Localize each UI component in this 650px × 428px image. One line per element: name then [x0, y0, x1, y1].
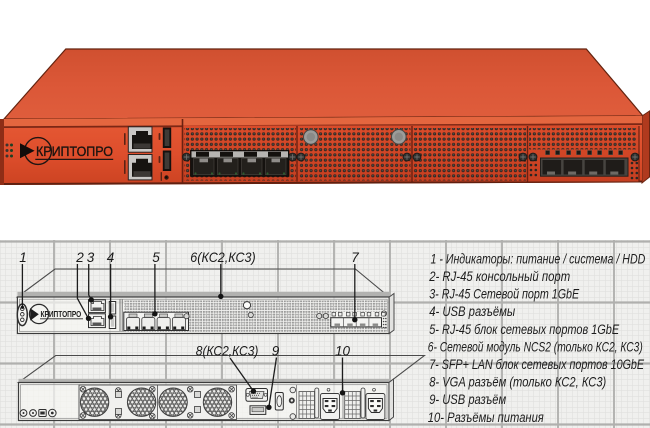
svg-text:7: 7 [351, 250, 359, 265]
svg-text:1 - Индикаторы: питание / сист: 1 - Индикаторы: питание / система / HDD [431, 251, 646, 267]
svg-text:2- RJ-45 консольный порт: 2- RJ-45 консольный порт [428, 269, 570, 284]
svg-text:9: 9 [272, 344, 280, 359]
svg-text:3: 3 [87, 250, 95, 265]
svg-text:6- Сетевой модуль NCS2 (только: 6- Сетевой модуль NCS2 (только КС2, КС3) [428, 339, 643, 355]
svg-text:КРИПТОПРО: КРИПТОПРО [36, 144, 113, 159]
svg-text:4: 4 [107, 250, 115, 265]
svg-text:4- USB разъёмы: 4- USB разъёмы [429, 304, 515, 319]
svg-text:10- Разъёмы питания: 10- Разъёмы питания [428, 410, 544, 425]
svg-text:5: 5 [152, 250, 160, 265]
svg-text:5- RJ-45 блок сетевых портов 1: 5- RJ-45 блок сетевых портов 1GbE [429, 322, 620, 337]
svg-text:КРИПТОПРО: КРИПТОПРО [41, 310, 82, 320]
svg-text:1: 1 [19, 250, 27, 265]
svg-text:10: 10 [335, 344, 351, 359]
svg-text:9- USB разъём: 9- USB разъём [429, 392, 506, 407]
svg-text:8- VGA разъём (только КС2, КС3: 8- VGA разъём (только КС2, КС3) [429, 375, 606, 390]
svg-text:3- RJ-45 Сетевой порт 1GbE: 3- RJ-45 Сетевой порт 1GbE [429, 287, 580, 302]
svg-text:8(КС2,КС3): 8(КС2,КС3) [196, 343, 259, 359]
svg-text:6(КС2,КС3): 6(КС2,КС3) [190, 250, 255, 266]
svg-text:7- SFP+ LAN блок сетевых порто: 7- SFP+ LAN блок сетевых портов 10GbE [429, 357, 645, 372]
svg-text:2: 2 [75, 250, 84, 265]
